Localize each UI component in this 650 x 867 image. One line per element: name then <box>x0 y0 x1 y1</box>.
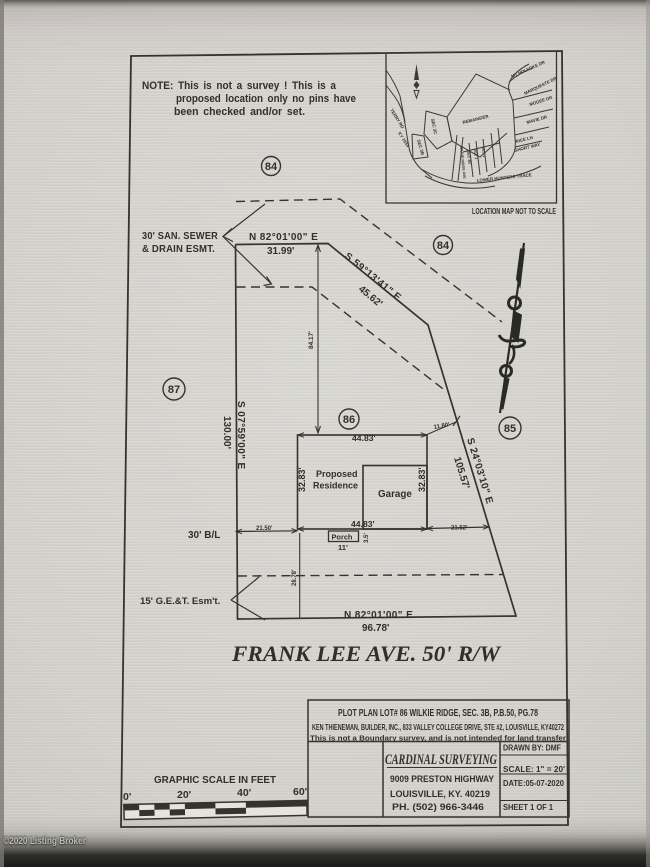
svg-text:S 07°59'00" E: S 07°59'00" E <box>235 401 246 470</box>
svg-text:85: 85 <box>504 423 516 435</box>
svg-text:LOCATION MAP NOT TO SCALE: LOCATION MAP NOT TO SCALE <box>472 206 556 216</box>
svg-text:84.17': 84.17' <box>308 331 315 349</box>
svg-text:proposed location only no pins: proposed location only no pins have <box>176 93 356 105</box>
svg-text:130.00': 130.00' <box>221 416 232 449</box>
svg-text:NOTE: This is not a survey ! T: NOTE: This is not a survey ! This is a <box>142 80 337 92</box>
svg-text:Garage: Garage <box>378 489 412 500</box>
svg-text:& DRAIN ESMT.: & DRAIN ESMT. <box>142 244 215 255</box>
svg-text:©2020 Listing Broker: ©2020 Listing Broker <box>3 835 86 847</box>
svg-text:DATE:05-07-2020: DATE:05-07-2020 <box>503 779 565 788</box>
svg-text:Residence: Residence <box>313 481 358 491</box>
svg-text:30' SAN. SEWER: 30' SAN. SEWER <box>142 231 219 242</box>
svg-text:32.83': 32.83' <box>297 467 307 492</box>
svg-text:28.78': 28.78' <box>292 569 298 586</box>
svg-text:KEN THIENEMAN, BUILDER, INC.,: KEN THIENEMAN, BUILDER, INC., 833 VALLEY… <box>312 722 564 732</box>
svg-text:SHEET 1 OF 1: SHEET 1 OF 1 <box>503 803 554 812</box>
svg-text:N 82°01'00" E: N 82°01'00" E <box>344 610 413 621</box>
svg-text:20': 20' <box>177 789 191 801</box>
svg-text:84: 84 <box>265 161 278 173</box>
svg-text:21.50': 21.50' <box>256 526 273 532</box>
svg-text:0': 0' <box>123 791 131 803</box>
svg-text:44.83': 44.83' <box>351 519 375 529</box>
svg-text:3.5': 3.5' <box>364 533 370 543</box>
svg-text:30' B/L: 30' B/L <box>188 530 220 541</box>
svg-text:SCALE: 1" = 20': SCALE: 1" = 20' <box>503 765 565 774</box>
svg-text:31.99': 31.99' <box>267 246 294 257</box>
svg-text:PH. (502) 966-3446: PH. (502) 966-3446 <box>392 802 484 813</box>
svg-text:FRANK LEE AVE. 50' R/W: FRANK LEE AVE. 50' R/W <box>231 641 502 666</box>
svg-text:11': 11' <box>338 543 348 552</box>
svg-text:PLOT PLAN LOT# 86 WILKIE RIDGE: PLOT PLAN LOT# 86 WILKIE RIDGE, SEC. 3B,… <box>338 707 538 719</box>
svg-text:32.83': 32.83' <box>417 467 427 492</box>
svg-text:9009 PRESTON HIGHWAY: 9009 PRESTON HIGHWAY <box>390 774 495 785</box>
svg-text:N 82°01'00" E: N 82°01'00" E <box>249 232 318 243</box>
svg-text:84: 84 <box>437 240 450 252</box>
svg-text:DRAWN BY: DMF: DRAWN BY: DMF <box>503 744 561 753</box>
svg-text:been checked and/or set.: been checked and/or set. <box>174 106 305 118</box>
svg-text:15' G.E.&T. Esm't.: 15' G.E.&T. Esm't. <box>140 596 220 607</box>
svg-text:96.78': 96.78' <box>362 623 389 634</box>
svg-text:This is not a Boundary survey,: This is not a Boundary survey, and is no… <box>310 734 566 743</box>
svg-text:Porch: Porch <box>332 533 353 542</box>
svg-text:86: 86 <box>343 414 355 426</box>
svg-text:GRAPHIC SCALE IN FEET: GRAPHIC SCALE IN FEET <box>154 775 276 786</box>
svg-text:CARDINAL SURVEYING: CARDINAL SURVEYING <box>385 752 497 768</box>
svg-text:21.52': 21.52' <box>451 526 468 532</box>
svg-text:87: 87 <box>168 384 180 396</box>
svg-text:LOUISVILLE, KY. 40219: LOUISVILLE, KY. 40219 <box>390 789 490 800</box>
svg-text:Proposed: Proposed <box>316 469 358 479</box>
svg-text:40': 40' <box>237 787 251 799</box>
svg-text:44.83': 44.83' <box>352 433 376 443</box>
svg-text:60': 60' <box>293 786 307 798</box>
